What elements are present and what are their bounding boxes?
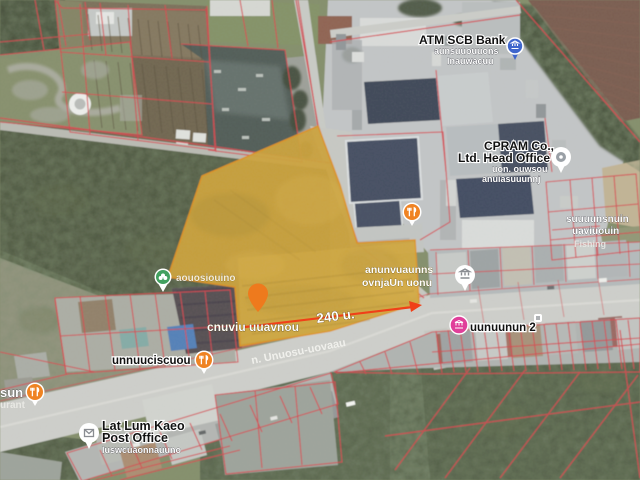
svg-text:suuuunsnuin: suuuunsnuin <box>566 214 629 225</box>
svg-text:unnuuciscuou: unnuuciscuou <box>112 355 191 367</box>
svg-text:cnuviu uuavnou: cnuviu uuavnou <box>207 320 299 334</box>
svg-text:ovnjaUn uonu: ovnjaUn uonu <box>362 277 432 289</box>
svg-text:Post Office: Post Office <box>102 431 168 445</box>
svg-text:uunuunun 2: uunuunun 2 <box>470 322 536 334</box>
svg-text:urant: urant <box>0 400 26 411</box>
svg-text:ATM SCB Bank: ATM SCB Bank <box>419 33 506 47</box>
svg-text:uaviuouin: uaviuouin <box>572 226 619 237</box>
svg-text:aunsuuouuons: aunsuuouuons <box>434 46 499 56</box>
svg-text:Ltd. Head Office: Ltd. Head Office <box>458 151 550 165</box>
svg-text:aouosiouino: aouosiouino <box>176 273 235 284</box>
svg-text:anunvuaunns: anunvuaunns <box>365 264 433 276</box>
svg-text:luswcuaonnauuno: luswcuaonnauuno <box>102 445 182 455</box>
svg-text:Fishing: Fishing <box>574 239 606 249</box>
svg-text:lnauwacuu: lnauwacuu <box>447 56 494 66</box>
svg-text:sun: sun <box>0 385 23 400</box>
svg-text:anuiasuuunnj: anuiasuuunnj <box>482 174 541 184</box>
svg-text:uon. ouwsou: uon. ouwsou <box>492 164 548 174</box>
